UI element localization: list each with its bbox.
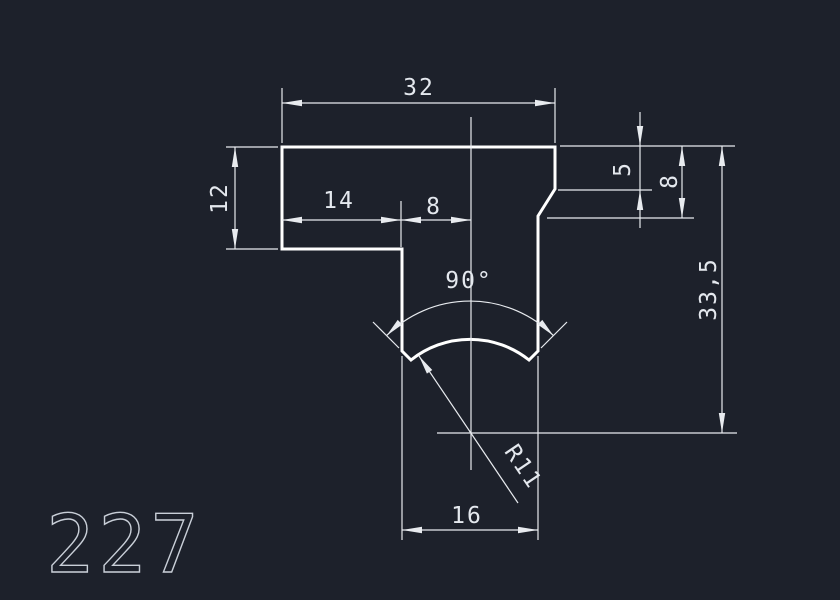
dimension-text: 8 <box>657 173 683 189</box>
dimension-text: 90° <box>445 268 493 294</box>
dimension-text: 33,5 <box>696 257 722 320</box>
drawing-canvas: 32 12 14 8 5 8 <box>0 0 840 600</box>
part-number[interactable]: 227 <box>46 498 203 591</box>
dimension-text: 5 <box>610 161 636 177</box>
dimension-text: 12 <box>207 182 233 214</box>
dimension-text: 32 <box>403 75 435 101</box>
dimension-text: 8 <box>426 194 442 220</box>
dimension-text: 16 <box>451 503 483 529</box>
dimension-text: 14 <box>323 188 355 214</box>
